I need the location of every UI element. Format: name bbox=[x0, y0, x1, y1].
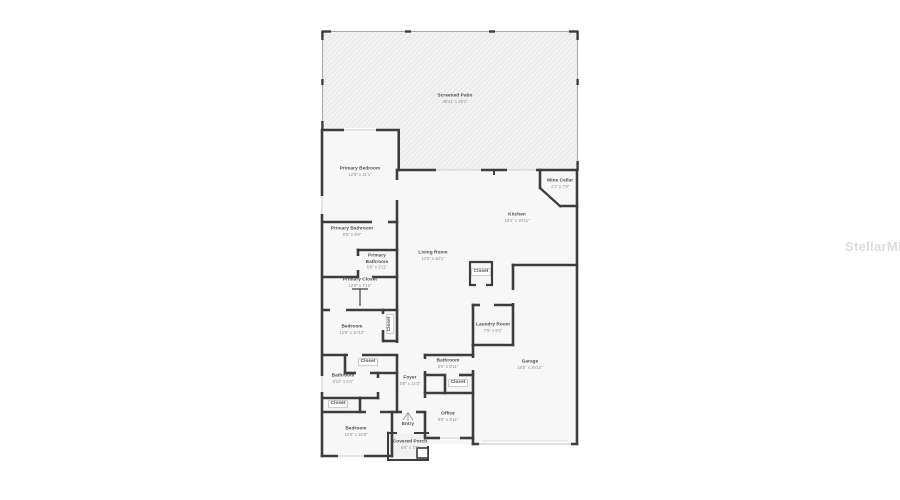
garage-door bbox=[479, 441, 571, 444]
door-mat bbox=[417, 448, 428, 458]
stellar-mls-watermark: StellarMLS bbox=[845, 239, 900, 254]
floorplan-walls bbox=[0, 0, 900, 500]
floorplan-image: Screened Patio 46'11" x 25'1" Primary Be… bbox=[0, 0, 900, 500]
room-fills bbox=[322, 31, 578, 460]
